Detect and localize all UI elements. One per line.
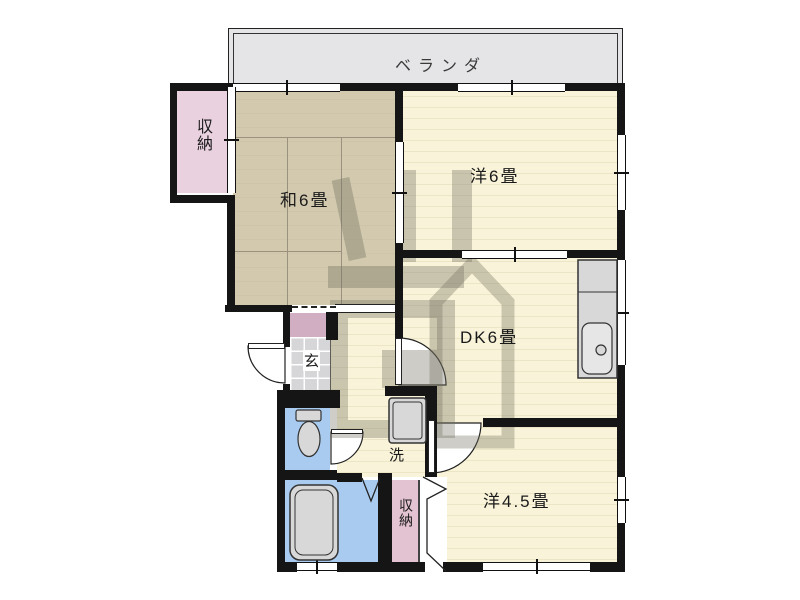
closet-door-mark [423, 477, 446, 571]
toilet-fixture [296, 410, 321, 457]
entrance-label: 玄 [303, 350, 320, 371]
japanese-room-label: 和6畳 [280, 186, 329, 211]
bath-door-mark [362, 478, 380, 501]
western6-label: 洋6畳 [470, 162, 519, 187]
western45-label: 洋4.5畳 [483, 487, 551, 512]
floor-plan: ベランダ 収納 和6畳 洋6畳 DK6畳 洋4.5畳 玄 洗 収納 [0, 0, 800, 600]
balcony-label: ベランダ [395, 52, 487, 76]
washing-machine-fixture [389, 398, 426, 443]
dk-label: DK6畳 [460, 323, 518, 348]
bathtub-fixture [290, 485, 338, 560]
storage-bottom-label: 収納 [396, 498, 416, 528]
laundry-label: 洗 [389, 444, 404, 465]
kitchen-sink-fixture [578, 260, 617, 378]
storage-top-left-label: 収納 [190, 118, 214, 152]
